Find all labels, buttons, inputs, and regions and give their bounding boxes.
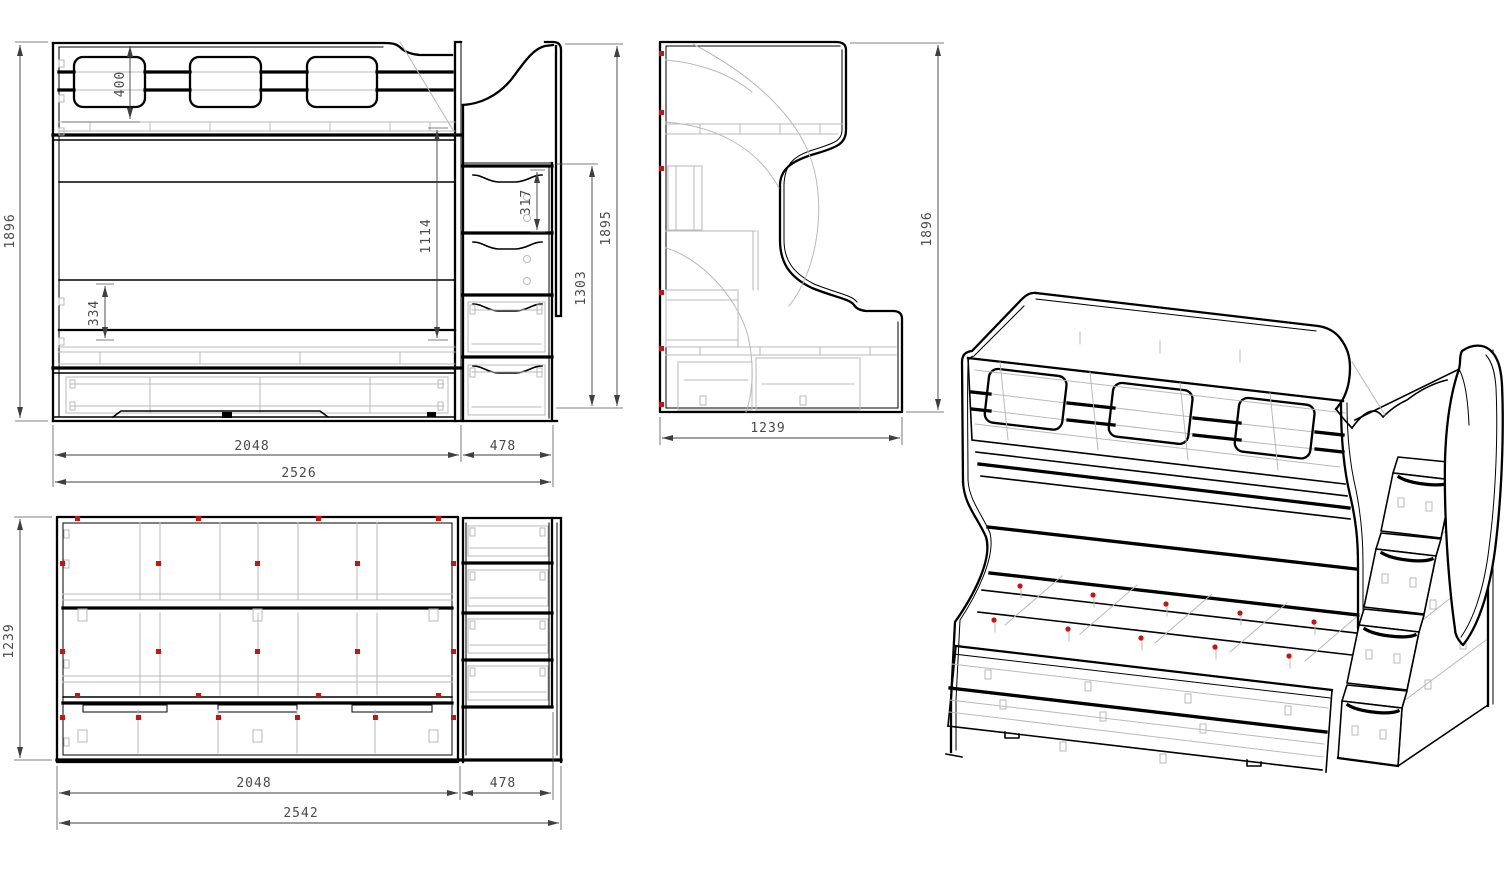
dim-front-step-pitch: 317 — [519, 189, 534, 215]
front-stair-unit — [463, 42, 561, 421]
dim-plan-total-width: 2542 — [283, 806, 318, 821]
dim-side-depth: 1239 — [750, 421, 785, 436]
iso-lower-bed — [948, 527, 1360, 772]
side-view: 1239 1896 — [659, 42, 944, 445]
side-outline — [660, 42, 902, 412]
front-mid-lines — [53, 182, 461, 373]
dim-front-total-width: 2526 — [281, 466, 316, 481]
plan-hidden-partitions — [63, 523, 452, 753]
iso-left-panel-leg — [946, 480, 991, 757]
iso-stair-side-blade — [1445, 346, 1503, 645]
dim-front-bed-width: 2048 — [234, 439, 269, 454]
front-upper-platform — [53, 122, 461, 140]
front-left-panel-fittings — [59, 60, 64, 345]
dim-plan-bed-width: 2048 — [236, 776, 271, 791]
top-view: 1239 2048 478 2542 — [2, 516, 561, 830]
dim-front-drawer-zone: 334 — [87, 300, 102, 326]
dim-side-height: 1896 — [920, 211, 935, 246]
plan-bed-outline — [57, 517, 561, 762]
plan-stair-unit — [463, 518, 561, 762]
drawing-sheet: 1896 400 1114 334 317 1303 1895 2048 478 — [0, 0, 1510, 872]
plan-fitting-blocks — [64, 530, 438, 746]
dim-plan-depth: 1239 — [2, 623, 17, 658]
dim-front-guard-height: 400 — [113, 71, 128, 97]
dim-plan-stair-width: 478 — [490, 776, 516, 791]
dim-front-stair-total-height: 1895 — [599, 210, 614, 245]
dim-front-stair-drawers-height: 1303 — [574, 270, 589, 305]
technical-drawing-canvas: 1896 400 1114 334 317 1303 1895 2048 478 — [0, 0, 1510, 872]
dim-front-total-height: 1896 — [3, 213, 18, 248]
iso-upper-bunk — [962, 293, 1350, 519]
isometric-view — [946, 293, 1503, 772]
front-view: 1896 400 1114 334 317 1303 1895 2048 478 — [3, 42, 623, 487]
front-lower-drawer — [66, 377, 448, 418]
dim-front-rail-to-platform: 1114 — [419, 218, 434, 253]
dim-front-stair-width: 478 — [490, 439, 516, 454]
